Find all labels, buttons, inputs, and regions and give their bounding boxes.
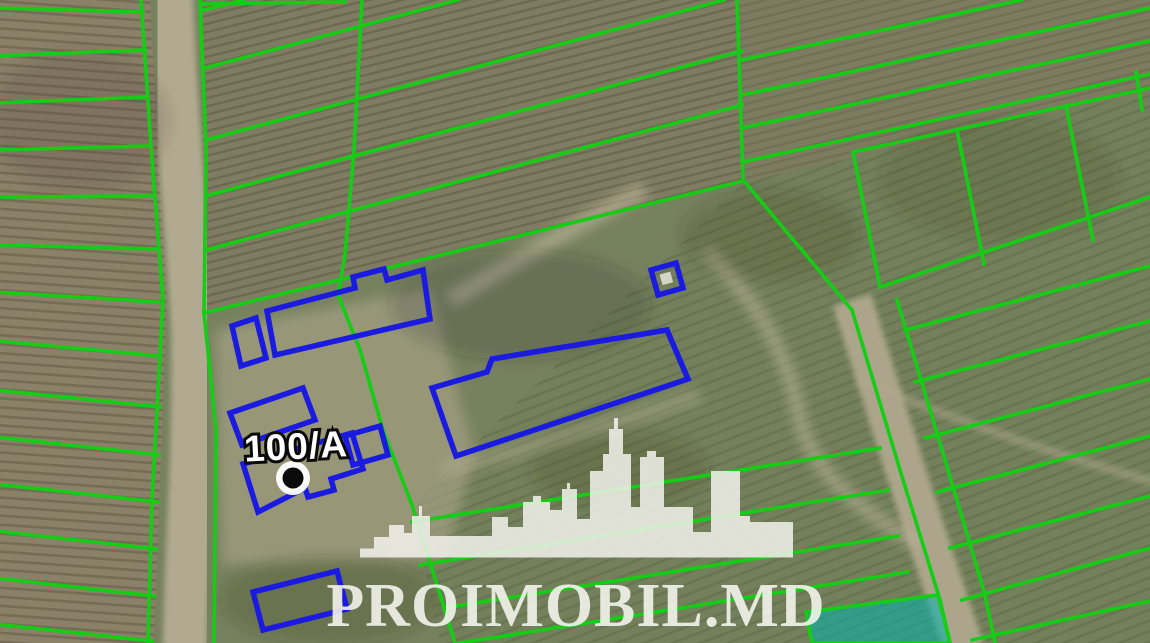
cadastral-map-svg: 100/A PROIMOBIL.MD bbox=[0, 0, 1150, 643]
watermark-brand-text: PROIMOBIL.MD bbox=[326, 572, 825, 640]
dirt-road-left bbox=[171, 0, 193, 643]
black-dot-marker bbox=[283, 468, 304, 489]
parcel-label: 100/A bbox=[243, 423, 349, 469]
satellite-map-image: 100/A PROIMOBIL.MD bbox=[0, 0, 1150, 643]
